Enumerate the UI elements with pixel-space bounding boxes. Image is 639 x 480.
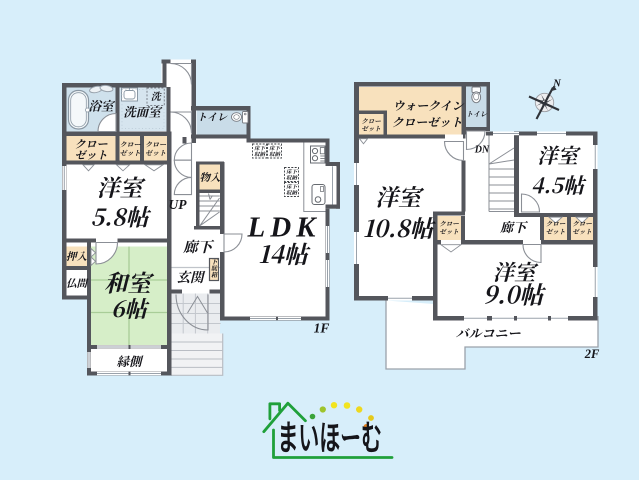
svg-text:玄関: 玄関 [177,266,206,286]
svg-text:ゼット: ゼット [120,149,141,159]
svg-text:洋室: 洋室 [375,180,425,213]
svg-text:バルコニー: バルコニー [455,323,521,342]
svg-text:まいほーむ: まいほーむ [278,411,382,461]
svg-text:5.8帖: 5.8帖 [90,200,151,233]
svg-text:1F: 1F [314,321,330,336]
svg-text:ゼット: ゼット [361,124,381,133]
svg-text:収納: 収納 [269,150,281,158]
svg-text:ゼット: ゼット [439,227,459,236]
svg-text:UP: UP [169,197,188,212]
svg-text:ウォークイン: ウォークイン [393,97,465,114]
svg-text:ゼット: ゼット [572,227,592,236]
svg-text:2F: 2F [584,347,600,361]
svg-text:洋室: 洋室 [537,139,581,169]
svg-text:物入: 物入 [200,170,221,185]
svg-text:トイレ: トイレ [466,110,488,120]
svg-text:4.5帖: 4.5帖 [531,170,587,200]
svg-text:洋室: 洋室 [97,170,147,203]
svg-text:クローゼット: クローゼット [392,114,463,131]
svg-text:縁側: 縁側 [116,352,144,370]
svg-text:6帖: 6帖 [111,292,150,324]
svg-text:押入: 押入 [66,249,87,264]
svg-text:10.8帖: 10.8帖 [363,210,437,244]
svg-text:収納: 収納 [286,189,298,197]
svg-text:N: N [552,79,561,90]
svg-text:ゼット: ゼット [145,149,166,159]
svg-text:DN: DN [474,145,490,156]
svg-text:ゼット: ゼット [75,147,108,163]
svg-text:洗面室: 洗面室 [123,103,163,121]
svg-text:廊下: 廊下 [500,217,529,236]
svg-text:ゼット: ゼット [546,227,566,236]
svg-text:廊下: 廊下 [183,236,214,257]
svg-text:9.0帖: 9.0帖 [483,276,547,311]
svg-text:浴室: 浴室 [88,97,116,115]
svg-text:収納: 収納 [254,150,266,158]
svg-text:トイレ: トイレ [197,109,228,124]
svg-text:14帖: 14帖 [258,235,310,270]
svg-text:仏間: 仏間 [66,276,88,291]
svg-text:収納: 収納 [286,174,298,182]
